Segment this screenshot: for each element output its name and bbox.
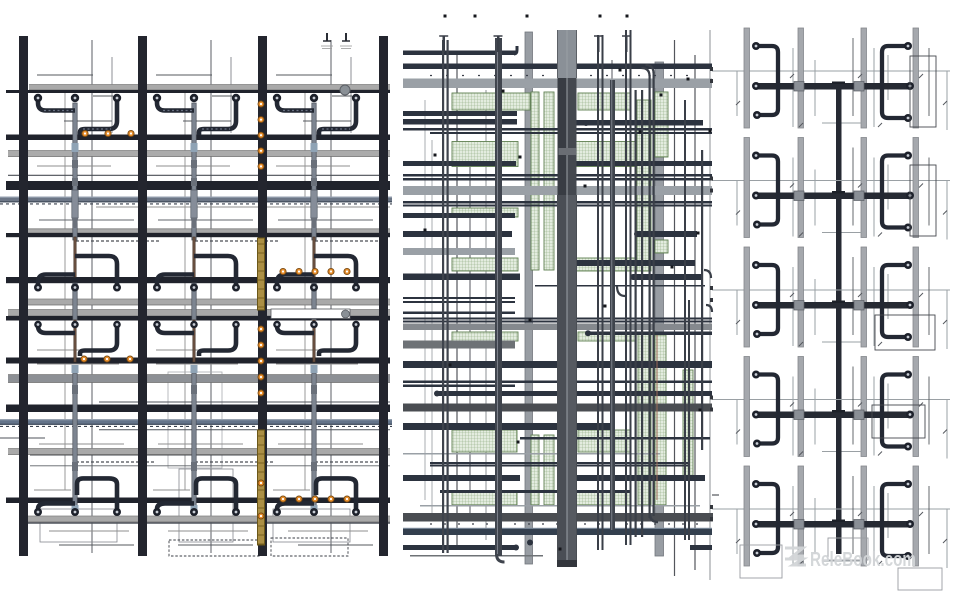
svg-text:ReleBook.com: ReleBook.com [810, 549, 916, 571]
